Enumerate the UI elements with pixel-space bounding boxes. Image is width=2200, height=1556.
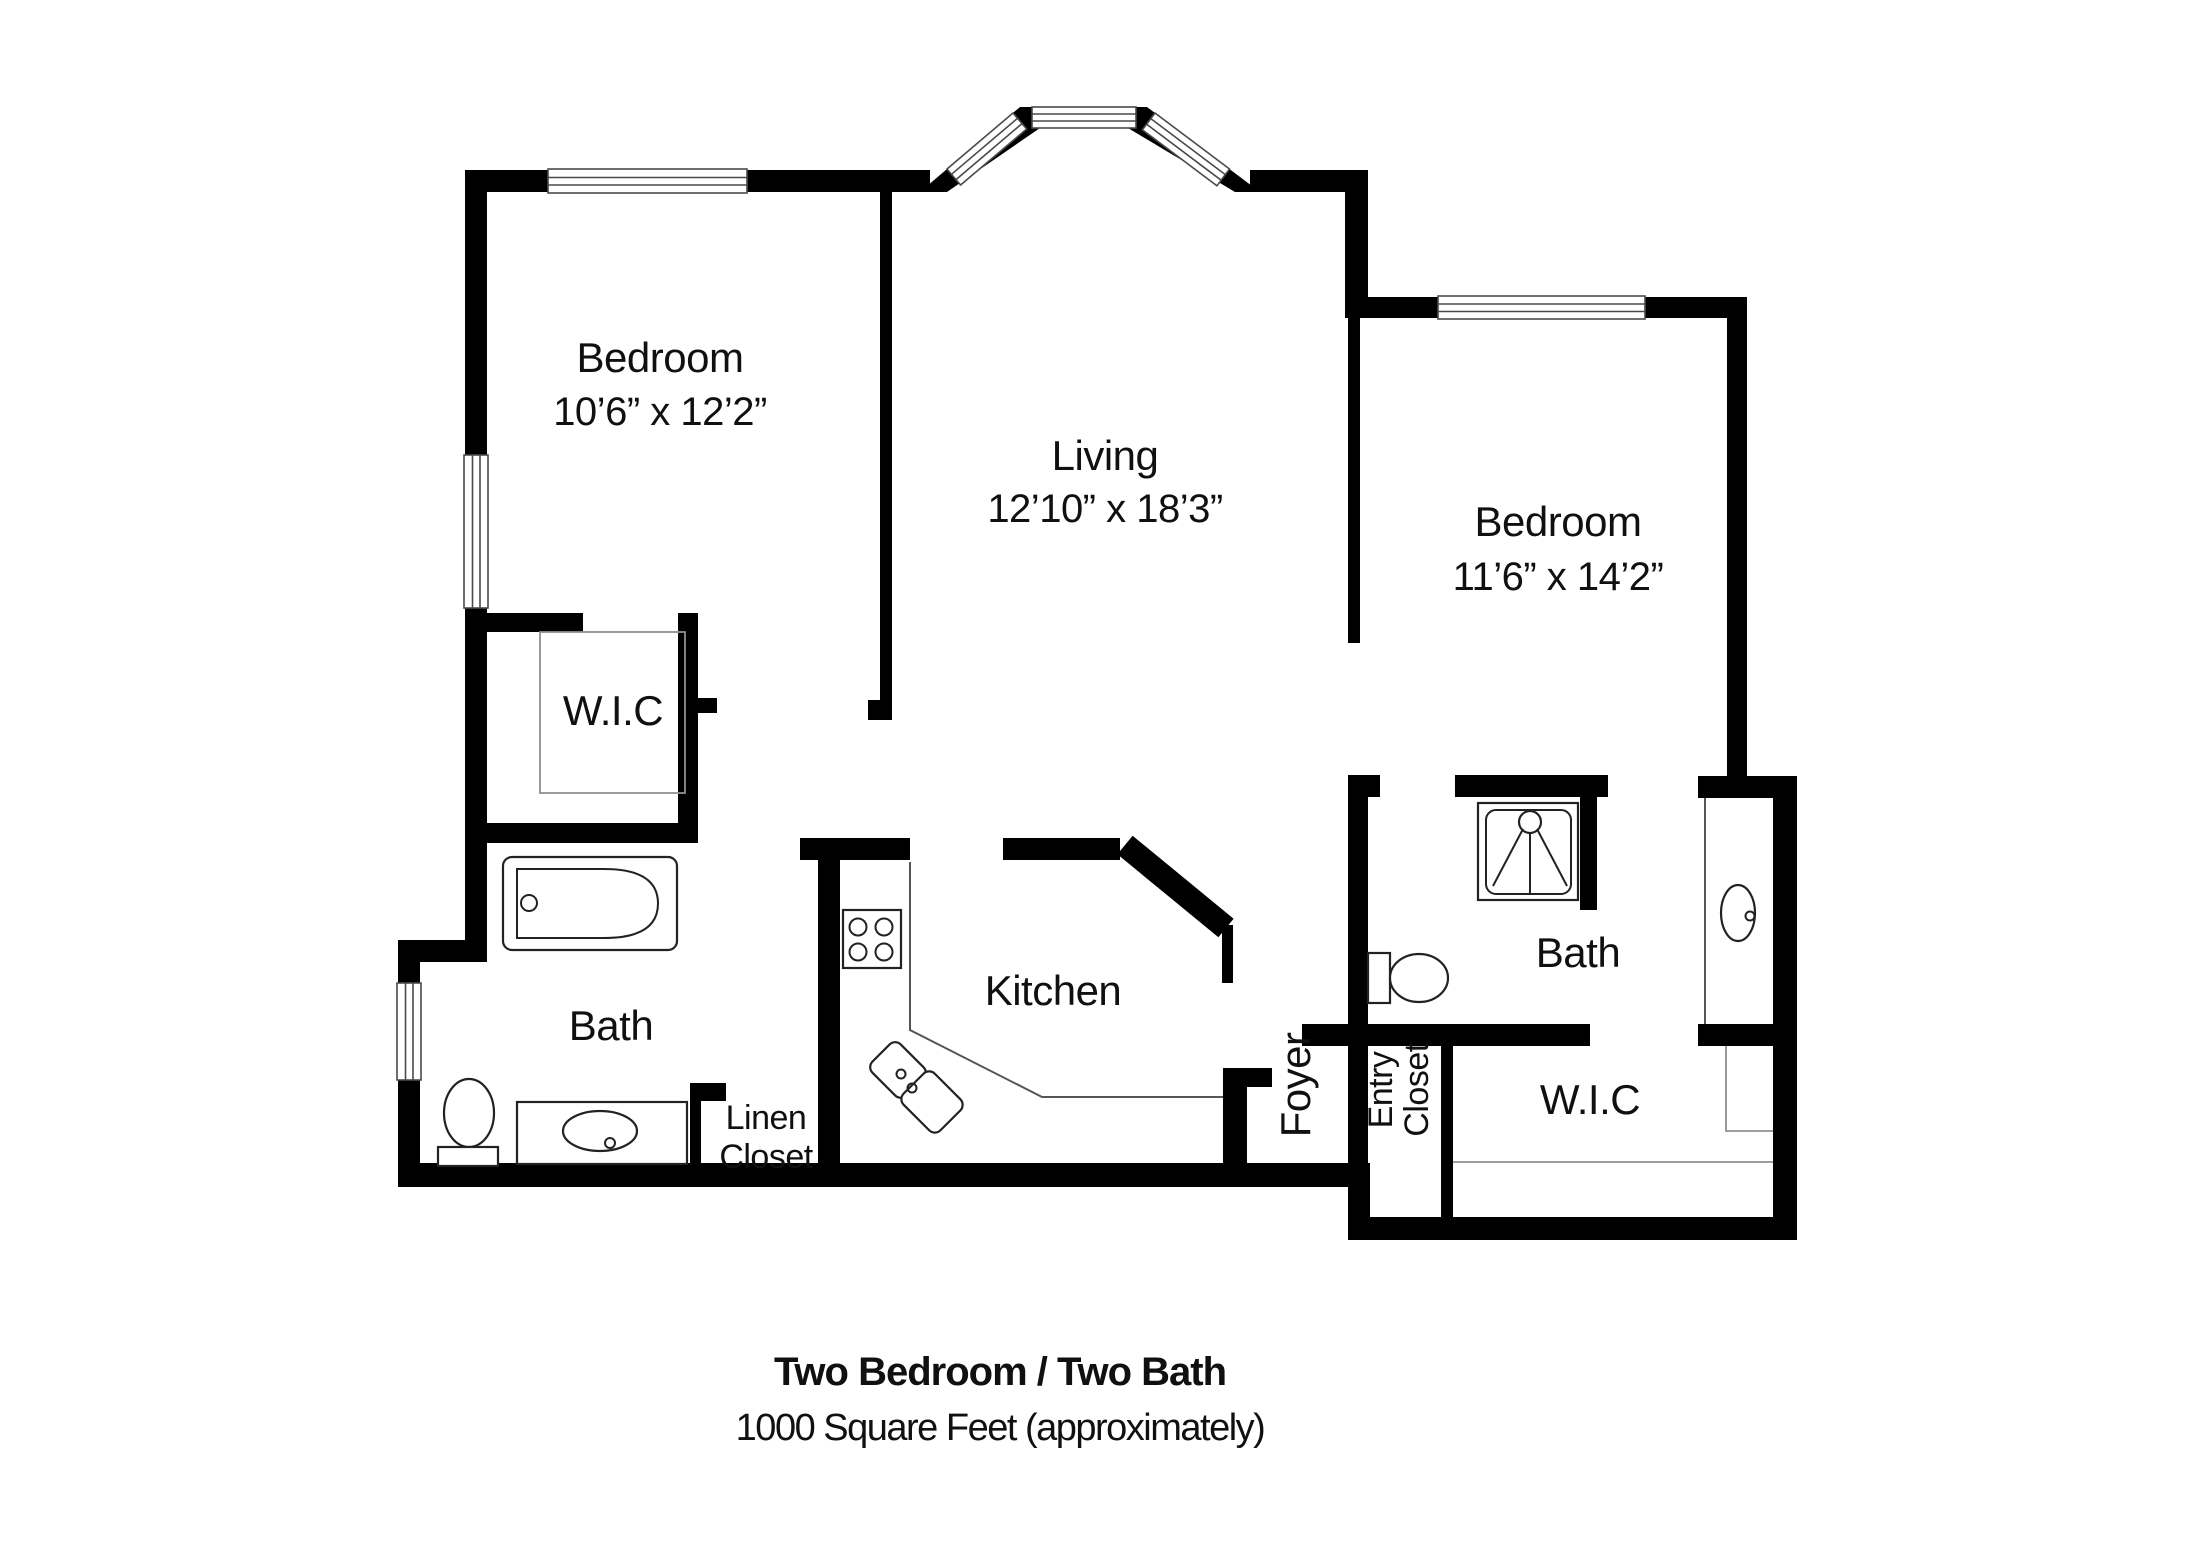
wall-bedroom2-bottom-jamb <box>1348 775 1380 797</box>
room-labels: Bedroom 10’6” x 12’2” Living 12’10” x 18… <box>553 334 1663 1176</box>
sink2-vanity-icon <box>1705 798 1755 1024</box>
wall-kitchen-diag-end <box>1222 925 1233 983</box>
entry-closet-label: Entry Closet <box>1362 1042 1436 1136</box>
wall-foyer-bath2 <box>1348 775 1368 1025</box>
wall-wic1-top <box>487 613 583 632</box>
wall-wic1-bottom <box>487 823 698 843</box>
wall-right-bedroom2 <box>1727 318 1747 787</box>
wall-bath2-bottom-right <box>1698 1024 1773 1046</box>
wall-wic1-stub <box>698 698 717 713</box>
wall-bedroom1-door-jamb <box>868 700 892 720</box>
wall-wic1-right <box>678 613 698 843</box>
toilet-icon <box>438 1079 498 1166</box>
stove-icon <box>843 910 901 968</box>
wall-step-connector <box>1348 1163 1370 1240</box>
bathtub-icon <box>503 857 677 950</box>
wall-linen-left <box>690 1083 701 1187</box>
wic1-label: W.I.C <box>563 687 663 734</box>
bath1-label: Bath <box>569 1002 653 1049</box>
wall-bottom-main <box>398 1163 1370 1187</box>
plan-title-line2: 1000 Square Feet (approximately) <box>736 1407 1265 1449</box>
wall-bath2-bottom-main <box>1330 1024 1590 1046</box>
shower-icon <box>1478 803 1578 900</box>
wall-linen-stub <box>701 1083 726 1101</box>
wall-right-bulge <box>1773 776 1797 1240</box>
wall-shower-side <box>1580 797 1597 910</box>
plan-title: Two Bedroom / Two Bath 1000 Square Feet … <box>736 1350 1265 1449</box>
living-dims: 12’10” x 18’3” <box>987 487 1222 531</box>
window-bay-left <box>947 113 1027 185</box>
floor-plan: Bedroom 10’6” x 12’2” Living 12’10” x 18… <box>0 0 2200 1556</box>
window-bedroom1-top <box>548 169 747 193</box>
window-bay-top <box>1032 107 1136 128</box>
bedroom2-dims: 11’6” x 14’2” <box>1453 555 1664 599</box>
window-bay-right <box>1142 113 1229 186</box>
wall-living-right <box>1348 318 1360 643</box>
living-label: Living <box>1052 432 1159 479</box>
exterior-walls <box>398 107 1797 1240</box>
wic2-label: W.I.C <box>1540 1076 1640 1123</box>
entry-closet-label-line1: Entry <box>1362 1051 1400 1128</box>
bedroom2-label: Bedroom <box>1475 498 1642 545</box>
bath2-label: Bath <box>1536 929 1620 976</box>
window-bath1-left <box>397 983 421 1080</box>
foyer-label: Foyer <box>1272 1032 1319 1137</box>
wic2-shelf-guide <box>1726 1046 1773 1131</box>
linen-closet-label-line1: Linen <box>726 1099 807 1137</box>
wall-entry-wic2-divider <box>1441 1046 1453 1217</box>
sink-vanity-icon <box>517 1102 687 1164</box>
wall-kitchen-left <box>818 860 840 1163</box>
wall-top-right-piece <box>1250 170 1368 192</box>
bedroom1-dims: 10’6” x 12’2” <box>553 390 767 434</box>
kitchen-sink-icon <box>867 1039 966 1136</box>
entry-closet-label-line2: Closet <box>1398 1042 1436 1136</box>
wall-bedroom2-bottom <box>1455 775 1608 797</box>
linen-closet-label-line2: Closet <box>719 1138 813 1176</box>
plan-title-line1: Two Bedroom / Two Bath <box>774 1350 1226 1394</box>
window-bedroom1-left <box>464 455 488 608</box>
wall-kitchen-diagonal <box>1125 845 1226 928</box>
wall-kitchen-top-left <box>800 838 910 860</box>
window-bedroom2-top <box>1438 296 1645 319</box>
wall-bottom-right <box>1370 1217 1797 1240</box>
toilet2-icon <box>1368 953 1448 1003</box>
wall-left-jog <box>398 940 487 962</box>
wall-kitchen-foyer-jamb <box>1223 1068 1272 1087</box>
wall-kitchen-top-right <box>1003 838 1120 860</box>
wall-divider-bedroom1-living <box>880 192 892 720</box>
kitchen-label: Kitchen <box>985 967 1122 1014</box>
bedroom1-label: Bedroom <box>577 334 744 381</box>
